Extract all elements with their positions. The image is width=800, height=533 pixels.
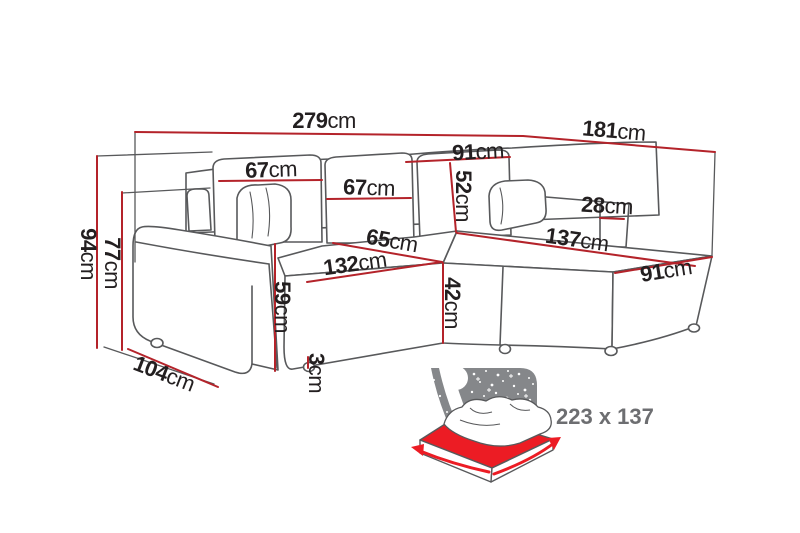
bed-width-arrowhead — [411, 444, 424, 456]
sleeping-function-icon — [411, 366, 561, 482]
dim-value: 279 — [292, 108, 327, 133]
sofa-leg — [500, 345, 511, 354]
dim-unit: cm — [357, 247, 389, 276]
dim-unit: cm — [440, 301, 465, 329]
dim-back-cushion-left-width: 67cm — [245, 158, 298, 182]
dim-unit: cm — [579, 228, 611, 257]
dim-front-height: 59cm — [271, 281, 293, 333]
sofa-leg — [689, 324, 700, 332]
dim-unit: cm — [662, 254, 694, 283]
dim-unit: cm — [388, 228, 420, 258]
sleeping-area-size: 223 x 137 — [556, 404, 654, 430]
ext-overall-depth-right — [712, 153, 715, 255]
dim-back-cushion-middle-width: 67cm — [343, 176, 396, 200]
dim-backrest-height: 52cm — [452, 170, 474, 222]
ext-overall-height-top — [97, 152, 212, 156]
dim-overall-height: 94cm — [77, 228, 99, 280]
dim-value: 28 — [581, 192, 606, 218]
dim-overall-width: 279cm — [292, 110, 356, 132]
dim-value: 42 — [440, 277, 465, 300]
sofa-leg — [605, 347, 617, 356]
dim-unit: cm — [475, 138, 505, 164]
dim-value: 137 — [544, 223, 582, 253]
dim-unit: cm — [604, 193, 634, 219]
dim-unit: cm — [304, 365, 329, 393]
dim-seat-height: 42cm — [441, 277, 463, 329]
dim-armrest-height: 77cm — [101, 237, 123, 289]
dim-unit: cm — [270, 305, 295, 333]
dim-value: 67 — [245, 157, 269, 183]
dim-value: 59 — [270, 281, 295, 304]
dim-unit: cm — [76, 252, 101, 280]
dim-leg-height: 3cm — [305, 353, 327, 393]
dim-right-armrest-width: 28cm — [581, 194, 634, 219]
dim-value: 52 — [451, 170, 476, 193]
pillow-left — [237, 184, 291, 250]
dim-value: 181 — [581, 115, 618, 143]
dim-unit: cm — [268, 156, 297, 182]
dim-unit: cm — [616, 118, 646, 145]
dim-value: 91 — [451, 139, 476, 165]
dim-value: 3 — [304, 353, 329, 365]
dim-value: 94 — [76, 228, 101, 251]
sofa-dimensions-diagram: 279cm 181cm 94cm 77cm 67cm 67cm 91cm 52c… — [0, 0, 800, 533]
dim-value: 77 — [100, 237, 125, 260]
moon-icon — [444, 366, 468, 390]
dim-overall-depth: 181cm — [581, 117, 646, 144]
dim-unit: cm — [100, 261, 125, 289]
dim-unit: cm — [451, 194, 476, 222]
sofa-leg — [151, 339, 163, 348]
dim-value: 132 — [322, 251, 360, 281]
pillow-right — [489, 180, 546, 230]
dim-value: 67 — [343, 174, 367, 200]
chaise-front-face — [443, 263, 613, 349]
left-armrest-back-post — [187, 189, 211, 231]
dim-unit: cm — [327, 108, 355, 133]
dim-unit: cm — [366, 175, 395, 201]
left-armrest — [133, 226, 278, 373]
dim-back-cushion-right-width: 91cm — [452, 140, 505, 165]
